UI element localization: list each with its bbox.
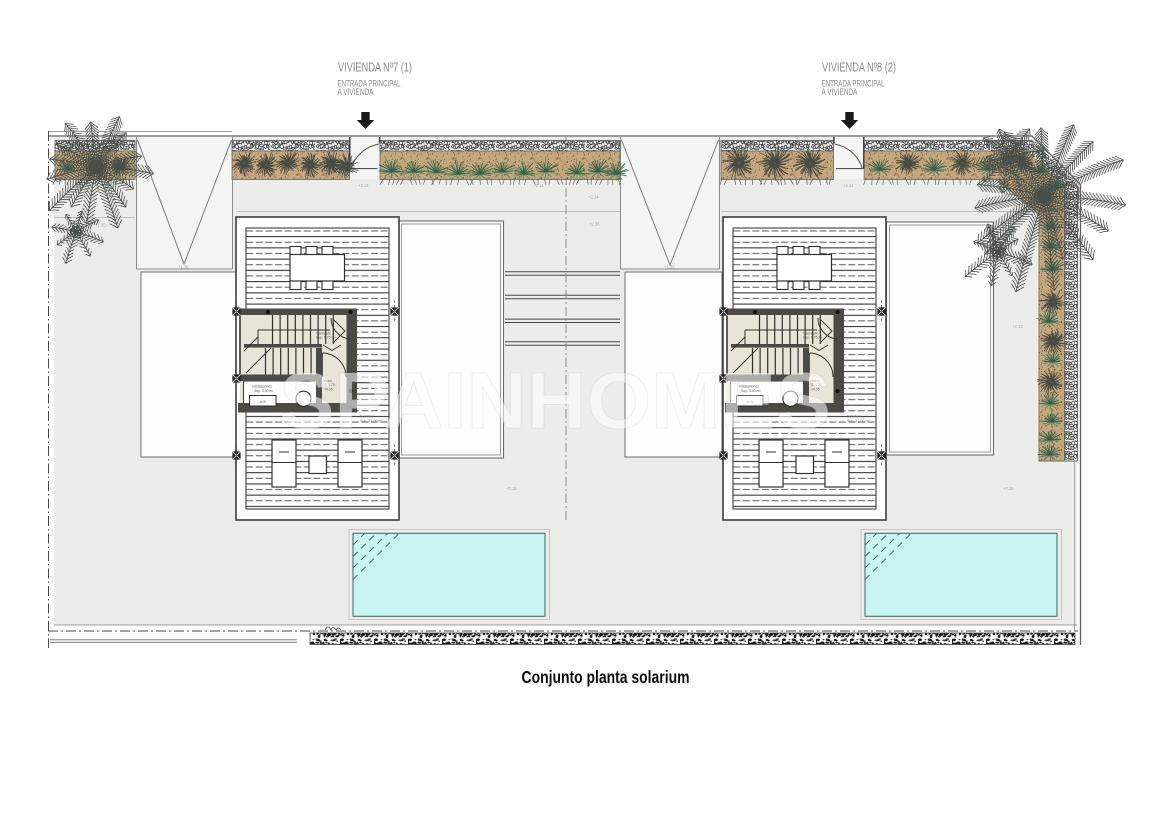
- svg-text:VIVIENDA Nº8 (2): VIVIENDA Nº8 (2): [822, 61, 896, 75]
- svg-text:+0.15: +0.15: [506, 486, 517, 491]
- svg-text:+2.14: +2.14: [588, 195, 599, 200]
- svg-text:SPAINHOMES: SPAINHOMES: [279, 356, 831, 445]
- svg-text:+2.36: +2.36: [589, 222, 600, 227]
- svg-text:+0.15: +0.15: [1003, 486, 1014, 491]
- svg-text:VIVIENDA Nº7 (1): VIVIENDA Nº7 (1): [338, 61, 412, 75]
- svg-text:+2.13: +2.13: [83, 195, 94, 200]
- svg-text:A/A: A/A: [259, 399, 266, 404]
- svg-text:+1.35: +1.35: [664, 265, 675, 270]
- svg-text:Sup. 1.75 m²: Sup. 1.75 m²: [316, 336, 336, 340]
- svg-text:+2.13: +2.13: [1012, 324, 1023, 329]
- svg-text:A VIVIENDA: A VIVIENDA: [822, 87, 858, 97]
- svg-text:+2.14: +2.14: [843, 183, 854, 188]
- svg-text:Sup. 3.40 m²: Sup. 3.40 m²: [254, 389, 274, 393]
- svg-text:+2.14: +2.14: [533, 183, 544, 188]
- svg-text:Conjunto planta solarium: Conjunto planta solarium: [522, 667, 690, 687]
- svg-text:+2.14: +2.14: [358, 183, 369, 188]
- svg-text:+1.35: +1.35: [178, 265, 189, 270]
- svg-text:+1.35: +1.35: [95, 223, 106, 228]
- svg-text:A VIVIENDA: A VIVIENDA: [338, 87, 374, 97]
